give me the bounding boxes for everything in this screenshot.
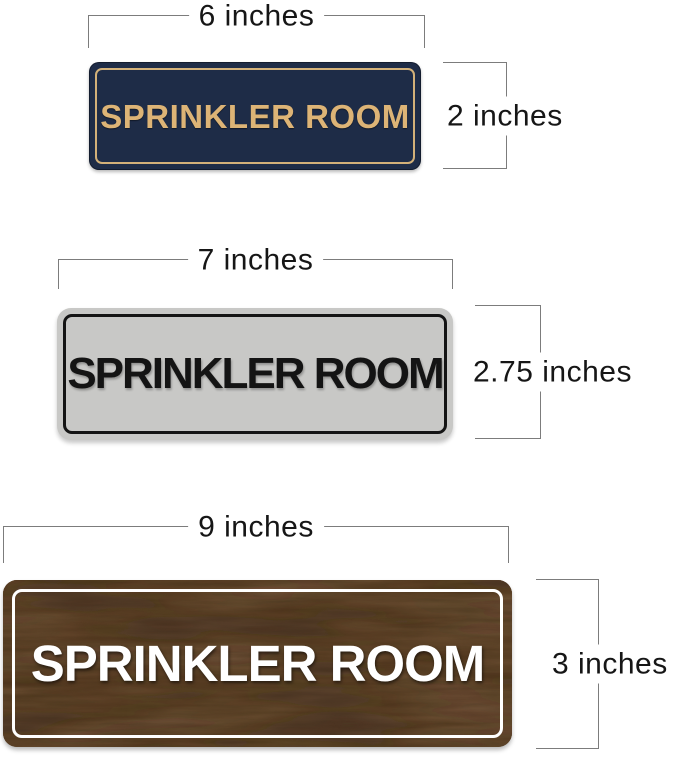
sign-text: SPRINKLER ROOM xyxy=(100,100,410,133)
width-dimension-label: 6 inches xyxy=(189,0,325,33)
width-dimension-bracket-9in: 9 inches xyxy=(3,526,509,563)
width-dimension-label: 9 inches xyxy=(188,511,324,544)
height-dimension-bracket-2-75in: 2.75 inches xyxy=(475,305,541,439)
sprinkler-room-sign-navy: SPRINKLER ROOM xyxy=(89,62,421,170)
width-dimension-bracket-6in: 6 inches xyxy=(88,15,425,48)
sign-text: SPRINKLER ROOM xyxy=(31,638,485,689)
height-dimension-label: 3 inches xyxy=(550,645,670,684)
width-dimension-label: 7 inches xyxy=(188,244,324,277)
sign-size-comparison-diagram: 6 inches SPRINKLER ROOM 2 inches 7 inche… xyxy=(0,0,679,757)
height-dimension-bracket-3in: 3 inches xyxy=(536,579,599,749)
sprinkler-room-sign-silver: SPRINKLER ROOM xyxy=(57,308,453,440)
sprinkler-room-sign-wood: SPRINKLER ROOM xyxy=(3,580,512,747)
height-dimension-label: 2 inches xyxy=(445,96,565,135)
height-dimension-label: 2.75 inches xyxy=(471,353,634,392)
width-dimension-bracket-7in: 7 inches xyxy=(58,259,453,289)
height-dimension-bracket-2in: 2 inches xyxy=(443,62,507,169)
sign-text: SPRINKLER ROOM xyxy=(67,352,442,396)
